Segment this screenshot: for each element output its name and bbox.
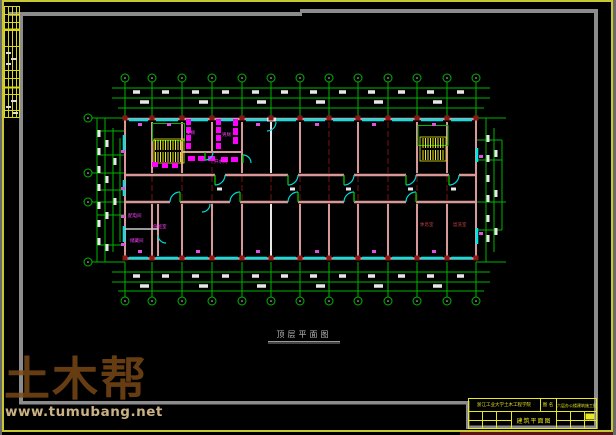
title-block-project: 六层办公楼建筑施工图设计 bbox=[557, 403, 596, 409]
title-block-org: 浙江工业大学土木工程学院 bbox=[469, 402, 539, 408]
watermark-brand: 土木帮 bbox=[4, 356, 148, 402]
room-label-lounge: 休息室 bbox=[420, 224, 434, 229]
revision-strip bbox=[5, 7, 20, 118]
room-label-washroom: 盥洗室 bbox=[453, 224, 467, 229]
room-label-toilet-male: 男厕 bbox=[222, 134, 231, 139]
title-block-name-label: 图 名 bbox=[540, 402, 556, 408]
grid-bubbles bbox=[84, 74, 480, 305]
room-label-water-room: 开水间 bbox=[214, 161, 228, 166]
room-label-toilet-female: 女厕 bbox=[186, 132, 195, 137]
title-block-drawing-title: 建筑平面图 bbox=[512, 416, 556, 425]
drawing-caption: 顶层平面图 bbox=[268, 329, 340, 342]
room-label-power-room: 配电间 bbox=[128, 215, 142, 220]
cad-drawing-viewport: 女厕 男厕 开水间 配电间 值班室 储藏间 休息室 盥洗室 顶层平面图 浙江工业… bbox=[0, 0, 616, 435]
watermark-url: www.tumubang.net bbox=[5, 404, 163, 420]
room-label-storage-room: 储藏间 bbox=[130, 240, 144, 245]
doors bbox=[158, 122, 459, 243]
room-label-duty-room: 值班室 bbox=[153, 226, 167, 231]
floor-plan bbox=[84, 74, 506, 305]
dimension-lines bbox=[92, 82, 506, 297]
